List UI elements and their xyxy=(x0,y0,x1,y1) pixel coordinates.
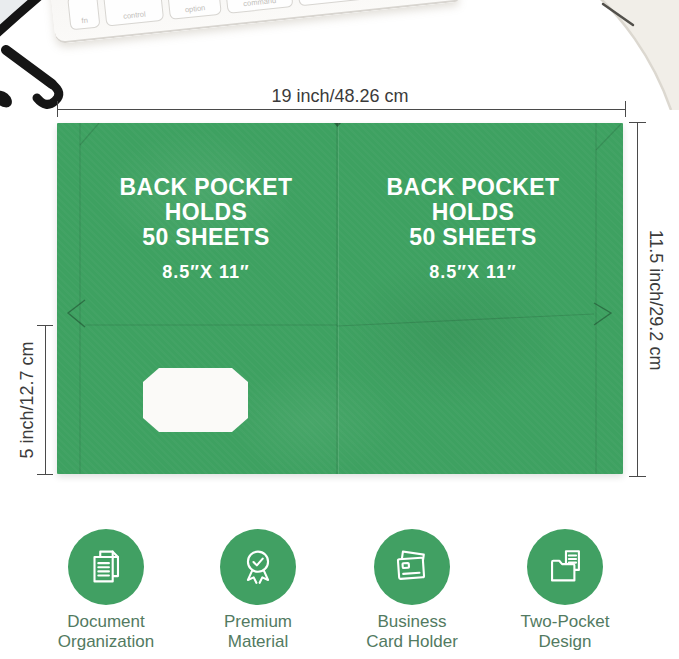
pocket-text-line: BACK POCKET xyxy=(358,175,588,200)
stacked-documents-icon xyxy=(83,544,129,590)
pocket-text-line: 50 SHEETS xyxy=(91,225,321,250)
dimension-tick xyxy=(37,474,53,475)
dimension-tick xyxy=(629,122,646,123)
award-ribbon-icon xyxy=(235,544,281,590)
width-dimension-label: 19 inch/48.26 cm xyxy=(271,86,408,107)
green-folder: BACK POCKET HOLDS 50 SHEETS 8.5″X 11″ BA… xyxy=(57,123,623,474)
two-pocket-folder-icon xyxy=(542,544,588,590)
feature-circle xyxy=(374,529,450,605)
height-dimension-label: 11.5 inch/29.2 cm xyxy=(645,230,666,371)
product-infographic: fn control option command 19 inch/48.26 … xyxy=(0,0,679,659)
eyeglasses xyxy=(0,0,130,130)
feature-document-organization: Document Organization xyxy=(31,529,181,651)
feature-label: Two-Pocket Design xyxy=(490,612,640,651)
feature-label: Premium Material xyxy=(183,612,333,651)
pocket-depth-dimension-line xyxy=(45,325,46,475)
dimension-tick xyxy=(629,476,646,477)
feature-circle xyxy=(527,529,603,605)
feature-circle xyxy=(68,529,144,605)
keyboard-key-command: command xyxy=(224,0,293,14)
pocket-depth-dimension-label: 5 inch/12.7 cm xyxy=(17,341,38,458)
pocket-text-line: HOLDS xyxy=(358,200,588,225)
feature-label: Business Card Holder xyxy=(337,612,487,651)
white-tablet-corner xyxy=(549,0,679,110)
business-card-icon xyxy=(389,544,435,590)
dimension-tick xyxy=(57,101,58,117)
feature-circle xyxy=(220,529,296,605)
dimension-tick xyxy=(37,325,53,326)
dimension-tick xyxy=(625,101,626,117)
keyboard-key-option: option xyxy=(167,0,222,20)
sheet-size-text: 8.5″X 11″ xyxy=(91,263,321,281)
pocket-text-line: 50 SHEETS xyxy=(358,225,588,250)
feature-two-pocket-design: Two-Pocket Design xyxy=(490,529,640,651)
width-dimension-line xyxy=(57,109,626,110)
keyboard-spacebar xyxy=(296,0,449,6)
right-pocket-text: BACK POCKET HOLDS 50 SHEETS 8.5″X 11″ xyxy=(358,175,588,281)
height-dimension-line xyxy=(637,122,638,477)
feature-premium-material: Premium Material xyxy=(183,529,333,651)
pocket-text-line: HOLDS xyxy=(91,200,321,225)
left-pocket-text: BACK POCKET HOLDS 50 SHEETS 8.5″X 11″ xyxy=(91,175,321,281)
feature-label: Document Organization xyxy=(31,612,181,651)
sheet-size-text: 8.5″X 11″ xyxy=(358,263,588,281)
feature-business-card-holder: Business Card Holder xyxy=(337,529,487,651)
pocket-text-line: BACK POCKET xyxy=(91,175,321,200)
business-card xyxy=(143,368,248,432)
